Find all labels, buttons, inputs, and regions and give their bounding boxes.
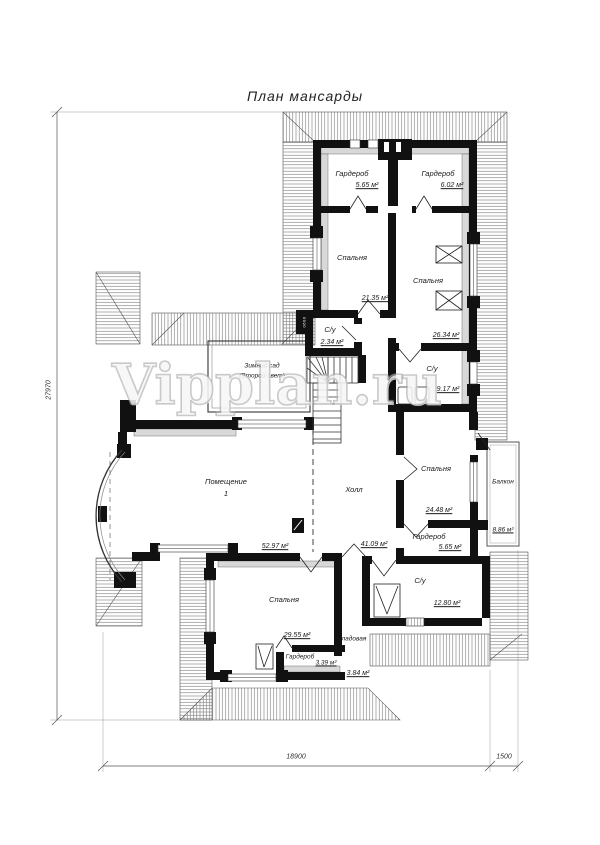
room-area-bath-small: 2.34 м² (321, 339, 344, 347)
staircase (307, 357, 358, 443)
floor-plan-page: План мансарды Vipplan.ru Гардероб 5.65 м… (0, 0, 600, 845)
room-label-wardrobe-bottom: Гардероб (286, 653, 315, 660)
room-label-room1: Помещение (205, 478, 247, 486)
room-label-storage: Кладовая (338, 635, 367, 642)
room-label-bedroom-top-left: Спальня (337, 254, 367, 262)
drawing-title: План мансарды (247, 88, 363, 104)
room-area-bath-mid: 9.17 м² (437, 386, 460, 394)
room-label-wardrobe-top-left: Гардероб (335, 170, 368, 178)
room-label-bath-mid: С/у (426, 365, 437, 373)
room-label-hall: Холл (345, 486, 362, 494)
room-area-storage: 3.84 м² (347, 670, 370, 678)
room-label-balcony: Балкон (492, 478, 514, 485)
room-area-bedroom-top-right: 26.34 м² (433, 332, 460, 340)
room-label-bedroom-right: Спальня (421, 465, 451, 473)
room-area-bedroom-top-left: 21.35 м² (362, 295, 389, 303)
door-width-marker: 0600 (302, 317, 307, 328)
dimension-height: 27970 (46, 380, 53, 399)
room-area-wardrobe-top-left: 5.65 м² (356, 182, 379, 190)
room-label-winter-garden: Зимний сад (244, 362, 279, 369)
dimension-width-balcony: 1500 (496, 754, 512, 761)
room-label-wardrobe-top-right: Гардероб (421, 170, 454, 178)
room-number-room1: 1 (224, 490, 228, 498)
room-area-wardrobe-right: 5.65 м² (439, 544, 462, 552)
room-label-bath-bottom: С/у (414, 577, 425, 585)
room-area-balcony: 8.86 м² (492, 526, 513, 533)
room-area-room1: 52.97 м² (262, 543, 289, 551)
room-area-wardrobe-top-right: 6.02 м² (441, 182, 464, 190)
room-area-bath-bottom: 12.80 м² (434, 600, 461, 608)
room-area-hall: 41.09 м² (361, 541, 388, 549)
room-label-bedroom-top-right: Спальня (413, 277, 443, 285)
room-area-wardrobe-bottom: 3.39 м² (315, 659, 336, 666)
room-label-wardrobe-right: Гардероб (412, 533, 445, 541)
room-area-bedroom-bottom: 29.55 м² (284, 632, 311, 640)
room-area-bedroom-right: 24.48 м² (426, 507, 453, 515)
dimension-width-main: 18900 (286, 754, 305, 761)
room-label-bedroom-bottom: Спальня (269, 596, 299, 604)
floor-plan-drawing (0, 0, 600, 845)
room-note-winter-garden: (Второй свет) (239, 372, 285, 379)
room-label-bath-small: С/у (324, 326, 335, 334)
